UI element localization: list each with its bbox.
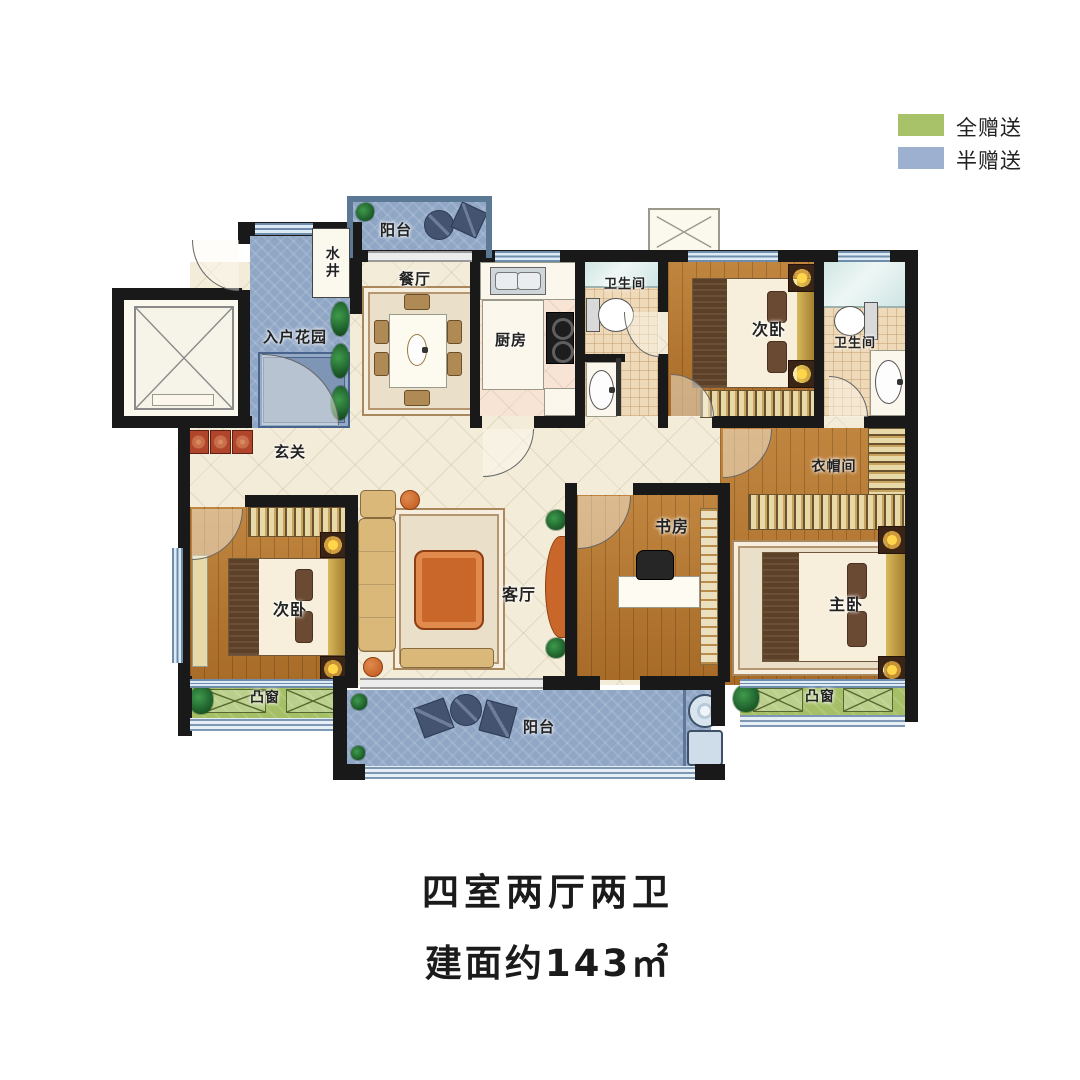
toilet: [864, 302, 878, 340]
room-label-bath2: 卫生间: [813, 337, 897, 351]
desk-chair: [636, 550, 674, 580]
plant: [733, 684, 759, 712]
window: [838, 251, 890, 262]
sliding-door: [360, 678, 543, 689]
pouf: [363, 657, 383, 677]
room-label-entry-garden: 入户花园: [240, 329, 350, 346]
wardrobe: [700, 390, 816, 418]
window: [172, 548, 183, 663]
elevator-sill: [152, 394, 214, 406]
bench: [400, 648, 494, 668]
doormat: [188, 430, 209, 454]
room-label-kitchen: 厨房: [476, 332, 546, 349]
sofa: [358, 518, 396, 652]
legend-swatch-half-gift: [898, 147, 944, 169]
bath2-sink: [875, 360, 902, 404]
room-label-bay-right: 凸窗: [765, 690, 875, 705]
window: [255, 223, 313, 235]
window: [688, 251, 778, 262]
unit-summary: 四室两厅两卫 建面约143㎡: [298, 862, 798, 987]
plant: [356, 203, 374, 221]
pouf: [400, 490, 420, 510]
room-label-bay-left: 凸窗: [210, 691, 320, 706]
room-label-cloakroom: 衣帽间: [779, 460, 889, 475]
unit-type-text: 四室两厅两卫: [298, 862, 798, 916]
dining-chair: [374, 320, 389, 344]
room-label-bedroom-top: 次卧: [714, 321, 824, 339]
plant: [546, 638, 566, 658]
nightstand-lamp: [788, 360, 816, 388]
room-label-living: 客厅: [464, 586, 574, 604]
room-label-study: 书房: [617, 518, 727, 536]
room-label-dining: 餐厅: [380, 271, 450, 288]
room-label-balcony-bottom: 阳台: [484, 719, 594, 736]
dining-chair: [404, 390, 430, 406]
sliding-door: [368, 251, 472, 262]
doormat: [210, 430, 231, 454]
room-label-master: 主卧: [791, 596, 901, 614]
legend-label-full-gift: 全赠送: [956, 112, 1022, 142]
desk: [618, 576, 700, 608]
room-label-foyer: 玄关: [235, 444, 345, 461]
room-label-balcony-top: 阳台: [346, 222, 446, 239]
dining-chair: [447, 352, 462, 376]
nightstand-lamp: [878, 526, 906, 554]
patio-table: [450, 694, 482, 726]
wardrobe: [748, 494, 907, 530]
armchair: [360, 490, 396, 518]
room-label-bedroom-left: 次卧: [235, 601, 345, 619]
kitchen-fridge: [544, 388, 576, 416]
balcony-rail: [365, 766, 695, 779]
room-label-water-well: 水井: [312, 228, 350, 298]
window: [190, 679, 333, 688]
dining-centerpiece: [407, 334, 427, 366]
ac-unit: [648, 208, 720, 256]
unit-area-text: 建面约143㎡: [298, 933, 798, 987]
dining-chair: [374, 352, 389, 376]
plant: [331, 344, 349, 378]
nightstand-lamp: [320, 532, 346, 558]
plant: [351, 746, 365, 760]
legend-label-half-gift: 半赠送: [956, 145, 1022, 175]
plant: [351, 694, 367, 710]
dining-chair: [404, 294, 430, 310]
bath1-sink: [589, 370, 614, 410]
kitchen-sink: [490, 267, 546, 295]
nightstand-lamp: [788, 264, 816, 292]
dining-chair: [447, 320, 462, 344]
room-label-bath1: 卫生间: [583, 278, 667, 292]
floorplan-page: { "legend": { "items": [ {"name": "full-…: [0, 0, 1080, 1080]
laundry-divider: [683, 690, 686, 766]
laundry-sink: [687, 730, 723, 766]
bay-window-rail: [190, 718, 333, 731]
bay-window-rail: [740, 715, 905, 727]
dresser: [192, 555, 208, 667]
window: [495, 251, 560, 262]
window: [740, 679, 905, 688]
legend-swatch-full-gift: [898, 114, 944, 136]
legend: 全赠送 半赠送: [898, 112, 1058, 172]
kitchen-stove: [546, 312, 574, 364]
toilet: [834, 306, 866, 336]
plant: [546, 510, 566, 530]
